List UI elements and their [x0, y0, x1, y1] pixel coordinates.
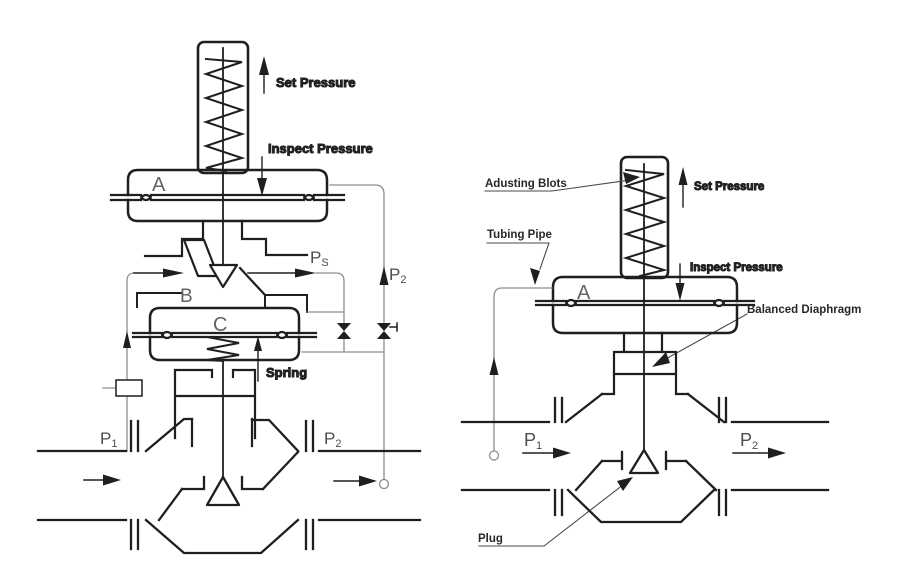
needle-valve-handle-icon — [377, 323, 391, 339]
port-p2-label: P2 — [324, 429, 341, 450]
plug-icon — [630, 450, 658, 473]
tubing-pipe-label: Tubing Pipe — [487, 229, 552, 241]
right-arrow-icon — [163, 269, 184, 278]
chamber-c-label: C — [213, 314, 227, 336]
right-arrow-icon — [103, 475, 121, 486]
down-arrow-icon — [257, 178, 267, 196]
left-regulator-diagram: Set Pressure Inspect Pressure A PS B — [38, 42, 420, 553]
adjusting-bolts-annotation: Adusting Blots — [485, 172, 640, 191]
valve-body: P1 P2 — [38, 370, 420, 553]
spring-label: Spring — [266, 365, 307, 380]
inspect-pressure-annotation: Inspect Pressure — [676, 262, 783, 301]
up-arrow-icon — [254, 336, 262, 351]
schematic-canvas: Set Pressure Inspect Pressure A PS B — [0, 0, 905, 568]
right-arrow-icon — [295, 269, 316, 278]
leader-arrow-icon — [530, 268, 540, 285]
flow-arrow-inlet — [84, 475, 121, 486]
up-arrow-icon — [679, 167, 688, 185]
inspect-pressure-annotation: Inspect Pressure — [257, 141, 373, 196]
pilot-valve: PS — [145, 221, 329, 295]
sense-line-downstream: P2 — [302, 185, 406, 489]
schematic-page: Set Pressure Inspect Pressure A PS B — [0, 0, 905, 568]
set-pressure-annotation: Set Pressure — [679, 167, 765, 207]
right-arrow-icon — [359, 476, 377, 487]
stem-cage — [175, 370, 255, 446]
chamber-a-label: A — [577, 282, 591, 304]
right-regulator-diagram: Adusting Blots Set Pressure Tubing Pipe … — [462, 157, 861, 546]
inspect-pressure-label: Inspect Pressure — [268, 141, 373, 156]
pilot-inlet-arrow — [134, 269, 184, 278]
tubing-pipe-annotation: Tubing Pipe — [487, 229, 552, 285]
leader-arrow-icon — [652, 352, 670, 367]
pressure-tap-circle — [380, 480, 389, 489]
port-p2-label: P2 — [740, 430, 758, 452]
port-p1-label: P1 — [524, 430, 542, 452]
flow-arrow-outlet — [334, 476, 377, 487]
pilot-pressure-label: PS — [310, 248, 329, 269]
leader-arrow-icon — [617, 477, 633, 491]
chamber-a-label: A — [152, 174, 166, 196]
diaphragm-chamber-a: A — [111, 170, 344, 221]
adjusting-bolts-label: Adusting Blots — [485, 178, 567, 190]
needle-valve-icon — [337, 323, 351, 339]
plug-icon — [207, 477, 239, 505]
up-arrow-icon — [380, 266, 389, 285]
diaphragm-chamber-c: C — [133, 308, 316, 361]
set-pressure-label: Set Pressure — [276, 75, 356, 90]
up-arrow-icon — [490, 357, 499, 375]
inspect-pressure-label: Inspect Pressure — [690, 262, 783, 274]
pressure-tap-circle — [490, 451, 499, 460]
balanced-diaphragm-label: Balanced Diaphragm — [747, 304, 861, 316]
spring-icon — [206, 59, 242, 171]
set-pressure-label: Set Pressure — [694, 181, 764, 193]
port-p1-label: P1 — [100, 429, 117, 450]
tubing-pipe-line — [490, 288, 553, 460]
right-arrow-icon — [768, 448, 786, 459]
balanced-diaphragm-assembly — [602, 333, 688, 394]
plug-label: Plug — [478, 533, 503, 545]
sense-p2-label: P2 — [389, 265, 406, 286]
pilot-outlet-arrow — [248, 269, 316, 278]
valve-body: P1 P2 — [462, 394, 828, 522]
balanced-diaphragm-annotation: Balanced Diaphragm — [652, 304, 861, 367]
down-arrow-icon — [676, 283, 685, 301]
set-pressure-annotation: Set Pressure — [259, 56, 356, 93]
spring-icon — [626, 170, 664, 276]
chamber-b-label: B — [180, 286, 193, 307]
right-arrow-icon — [553, 448, 571, 459]
diaphragm-chamber-a: A — [536, 277, 754, 333]
up-arrow-icon — [259, 56, 269, 75]
restrictor-icon — [116, 380, 142, 396]
up-arrow-icon — [123, 331, 131, 348]
main-spring-icon — [207, 337, 239, 361]
